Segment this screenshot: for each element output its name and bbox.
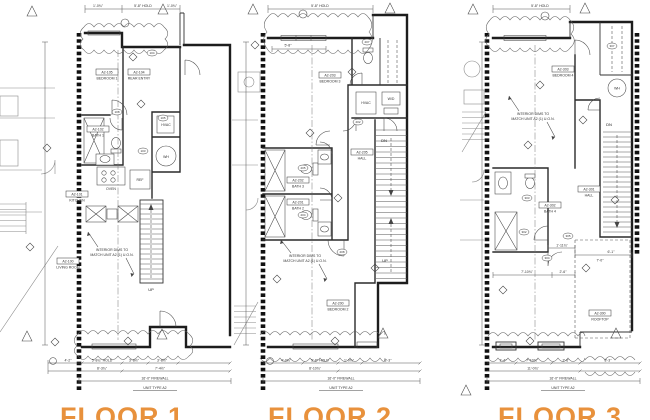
floor-3-stairs: DN [603,122,632,232]
hvac-label: HVAC [161,123,171,127]
oven-label: OVEN [106,187,116,191]
sink-icon [321,154,329,160]
floor-3-title: FLOOR 3 [498,402,622,420]
unit-a2-plans-drawing: OVEN REF HVAC WH UP [0,0,650,420]
svg-text:5'-8" HOLD: 5'-8" HOLD [311,359,329,363]
svg-text:A2-101: A2-101 [71,193,82,197]
svg-text:7'-10¾": 7'-10¾" [521,270,534,274]
svg-text:2'-6": 2'-6" [563,359,571,363]
svg-text:MATCH UNIT A2 (1) U.O.N.: MATCH UNIT A2 (1) U.O.N. [511,117,554,121]
floor-plan-sheet: OVEN REF HVAC WH UP [0,0,650,420]
svg-text:5'-8" HOLD: 5'-8" HOLD [134,4,152,8]
room-label-bedroom-3: A2-203 BEDROOM 3 [319,72,341,84]
svg-text:ROOFTOP: ROOFTOP [591,318,609,322]
svg-text:BEDROOM 3: BEDROOM 3 [319,80,340,84]
svg-text:INTERIOR DIMS TO: INTERIOR DIMS TO [289,254,321,258]
sink-icon [499,177,508,189]
water-heater-3: WH [608,79,626,97]
wh-label: WH [163,155,169,159]
svg-text:8'-10¾": 8'-10¾" [309,367,322,371]
svg-text:11'-0¾": 11'-0¾" [527,367,539,371]
svg-text:A2-102: A2-102 [92,128,103,132]
keynote-bubble-icon [267,358,274,365]
door-tags: 207 202 205 204 208 [298,39,372,255]
svg-text:MATCH UNIT A2 (1) U.O.N.: MATCH UNIT A2 (1) U.O.N. [283,259,326,263]
room-label-hall-3: A2-301 HALL [578,186,600,198]
svg-text:1'-0¾": 1'-0¾" [93,4,104,8]
firewall-dim: 16'-0" FIREWALL [327,377,354,381]
svg-text:LIVING ROOM: LIVING ROOM [56,266,79,270]
unit-type: UNIT TYPE A2 [329,386,352,390]
firewall-dim: 16'-0" FIREWALL [549,377,576,381]
svg-text:8'-3¾": 8'-3¾" [97,367,108,371]
svg-text:A2-202: A2-202 [292,179,303,183]
svg-text:A2-303: A2-303 [557,68,568,72]
svg-text:1'-4": 1'-4" [500,359,508,363]
svg-text:5'-8¾" HOLD: 5'-8¾" HOLD [92,359,113,363]
wall-tag-icons [251,41,379,345]
svg-text:1'-0¾": 1'-0¾" [344,359,355,363]
svg-text:HALL: HALL [585,194,594,198]
unit-type: UNIT TYPE A2 [551,386,574,390]
room-label-bath-3: A2-202 BATH 3 [287,177,309,189]
up-label: UP [382,258,388,263]
floor-3-plan: WH DN 307 30 [460,3,642,420]
cloud-bubble-icon [541,12,549,20]
svg-text:4'-0¾": 4'-0¾" [281,359,292,363]
svg-text:BEDROOM 2: BEDROOM 2 [327,308,348,312]
svg-text:207: 207 [364,40,369,44]
svg-text:3'-8½": 3'-8½" [129,359,140,363]
svg-text:A2-100: A2-100 [62,260,73,264]
svg-text:BEDROOM 4: BEDROOM 4 [552,74,573,78]
wall-tag-icons [26,53,145,346]
svg-text:205: 205 [300,166,305,170]
mechanical-closet: HVAC WH [156,116,176,166]
svg-text:4'-2": 4'-2" [65,359,73,363]
dn-label: DN [606,122,612,127]
bath-4-fixtures [495,172,535,250]
svg-text:8'-3": 8'-3" [385,359,393,363]
svg-text:204: 204 [300,213,305,217]
range-icon [97,167,125,185]
room-label-living-room: A2-100 LIVING ROOM [56,258,79,270]
laundry-mech-closet: HVAC W/D [356,92,400,114]
room-label-rooftop: A2-300 ROOFTOP [589,310,611,322]
room-label-kitchen: A2-101 KITCHEN [66,191,88,203]
svg-text:BATH 3: BATH 3 [292,185,304,189]
svg-text:304: 304 [544,256,549,260]
svg-text:6'-1": 6'-1" [608,250,616,254]
svg-text:A2-203: A2-203 [324,74,335,78]
interior-dims-note: INTERIOR DIMS TO MATCH UNIT A2 (1) U.O.N… [87,232,134,277]
floor-1-title: FLOOR 1 [60,402,184,420]
up-label: UP [148,287,154,292]
door-tags: 104 108 105 103 [112,50,168,154]
svg-text:MATCH UNIT A2 (1) U.O.N.: MATCH UNIT A2 (1) U.O.N. [90,253,133,257]
svg-text:1'-11¾": 1'-11¾" [556,244,568,248]
sink-icon [100,156,110,163]
svg-text:202: 202 [355,120,360,124]
room-tag: A2-105 [101,71,112,75]
svg-text:305: 305 [565,234,570,238]
hvac-label: HVAC [361,101,371,105]
room-label-bath-2: A2-201 BATH 2 [287,199,309,211]
svg-text:HALL: HALL [358,157,367,161]
svg-text:7'-0": 7'-0" [597,259,605,263]
room-name: BEDROOM 1 [96,77,117,81]
adjacent-unit-left [0,88,58,332]
unit-type: UNIT TYPE A2 [143,386,166,390]
svg-text:7'-4½": 7'-4½" [155,367,166,371]
cloud-bubble-icon [299,10,307,18]
svg-text:INTERIOR DIMS TO: INTERIOR DIMS TO [96,248,128,252]
ref-label: REF [137,178,144,182]
svg-text:5'-8" HOLD: 5'-8" HOLD [531,4,549,8]
svg-text:BATH 2: BATH 2 [292,207,304,211]
firewall-dim: 16'-0" FIREWALL [141,377,168,381]
svg-text:302: 302 [521,230,526,234]
svg-text:A2-104: A2-104 [133,71,144,75]
svg-text:303: 303 [524,196,529,200]
floor-1-stairs: UP [140,200,163,292]
svg-text:KITCHEN: KITCHEN [69,199,85,203]
wd-label: W/D [388,97,395,101]
interior-dims-note-2: INTERIOR DIMS TO MATCH UNIT A2 (1) U.O.N… [280,240,327,282]
room-label-hall-2: A2-205 HALL [351,149,373,161]
floor-2-title: FLOOR 2 [268,402,392,420]
svg-text:REAR ENTRY: REAR ENTRY [128,77,151,81]
interior-dims-note-3: INTERIOR DIMS TO MATCH UNIT A2 (1) U.O.N… [508,96,555,140]
stair-arrow-down-icon [389,190,394,196]
svg-text:7'-10¾": 7'-10¾" [526,359,539,363]
svg-text:104: 104 [149,51,154,55]
stair-arrow-up-icon [149,204,154,210]
svg-text:105: 105 [160,116,165,120]
stair-arrow-up-icon [389,218,394,224]
svg-text:5'-8" HOLD: 5'-8" HOLD [311,4,329,8]
svg-text:208: 208 [339,250,344,254]
keynote-bubble-icon [50,358,57,365]
svg-text:2'-6": 2'-6" [560,270,568,274]
sink-icon [321,226,329,232]
floor-2-plan: HVAC W/D DN UP [232,3,422,420]
svg-text:A2-201: A2-201 [292,201,303,205]
svg-text:3'-8½": 3'-8½" [157,359,168,363]
wh-label: WH [614,87,620,91]
room-label-rear-entry: A2-104 REAR ENTRY [128,69,151,81]
toilet-icon [112,138,121,149]
svg-text:A2-200: A2-200 [332,302,343,306]
toilet-icon [364,53,373,64]
svg-text:A2-301: A2-301 [583,188,594,192]
svg-text:INTERIOR DIMS TO: INTERIOR DIMS TO [517,112,549,116]
toilet-icon [526,178,535,189]
svg-text:BATH 1: BATH 1 [92,134,104,138]
room-label-bedroom-1: A2-105 BEDROOM 1 [96,69,118,81]
svg-text:108: 108 [114,110,119,114]
floor-1-plan: OVEN REF HVAC WH UP [0,4,232,420]
svg-text:BATH 4: BATH 4 [544,210,556,214]
svg-text:A2-302: A2-302 [544,204,555,208]
svg-text:103: 103 [140,149,145,153]
dn-label: DN [381,138,387,143]
svg-text:A2-205: A2-205 [356,151,367,155]
room-label-bath-4: A2-302 BATH 4 [539,202,561,214]
room-label-bedroom-4: A2-303 BEDROOM 4 [552,66,574,78]
svg-text:5'-8": 5'-8" [285,44,293,48]
floor-2-stairs: DN UP [376,130,407,279]
svg-text:A2-300: A2-300 [594,312,605,316]
revision-triangle-icons [461,3,621,395]
svg-text:307: 307 [609,44,614,48]
bath-1-fixtures [84,118,121,165]
svg-text:1'-0¾": 1'-0¾" [167,4,178,8]
room-label-bedroom-2: A2-200 BEDROOM 2 [327,300,349,312]
svg-text:8'-3": 8'-3" [605,359,613,363]
